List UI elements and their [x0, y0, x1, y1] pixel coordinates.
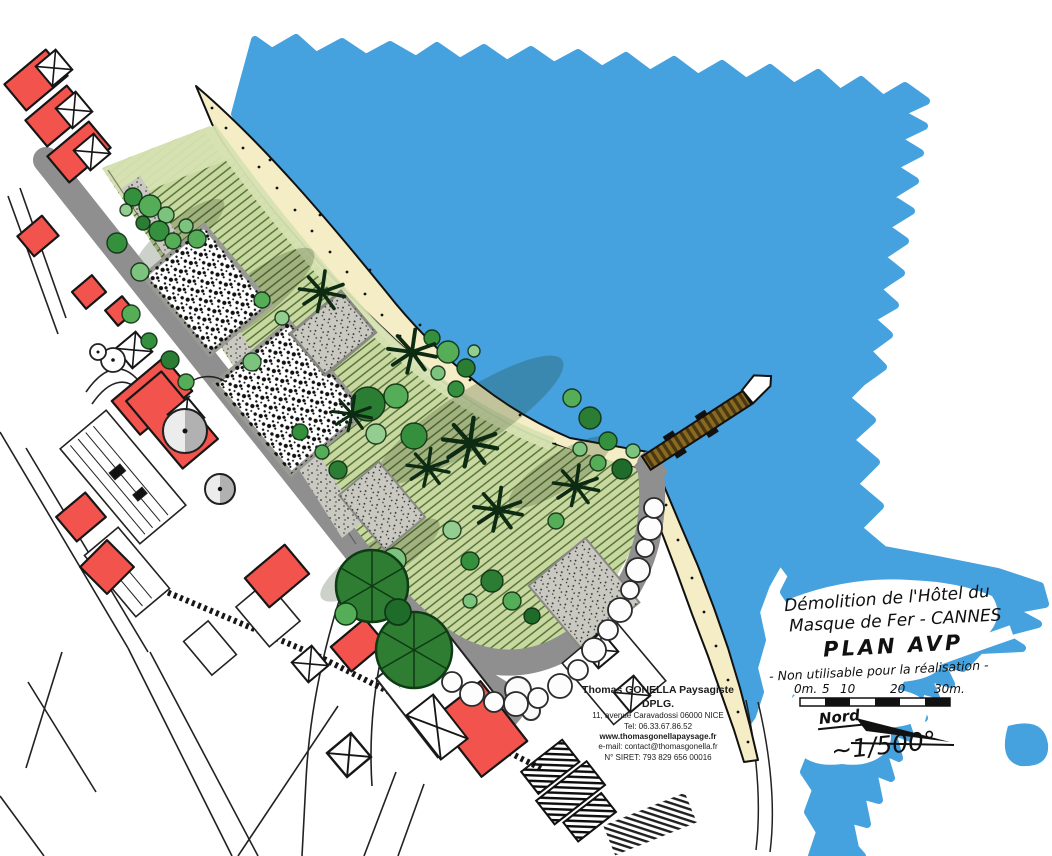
firm-siret: N° SIRET: 793 829 656 00016 [574, 753, 742, 763]
site-plan-drawing [0, 0, 1052, 856]
scale-label-5: 5 [822, 682, 830, 696]
scale-label-20: 20 [890, 682, 905, 696]
scale-label-30m: 30m. [934, 682, 965, 696]
dark-hatched-wedge [603, 793, 697, 856]
firm-tel: Tel: 06.33.67.86.52 [574, 722, 742, 732]
scale-label-0m: 0m. [794, 682, 817, 696]
firm-website: www.thomasgonellapaysage.fr [574, 732, 742, 742]
firm-name: Thomas GONELLA Paysagiste DPLG. [574, 684, 742, 711]
site-plan-canvas: Démolition de l'Hôtel du Masque de Fer -… [0, 0, 1052, 856]
scale-label-10: 10 [840, 682, 855, 696]
scale-bar [800, 698, 950, 706]
firm-email: e-mail: contact@thomasgonella.fr [574, 742, 742, 752]
firm-block: Thomas GONELLA Paysagiste DPLG. 11, aven… [574, 684, 742, 763]
firm-address: 11, avenue Caravadossi 06000 NICE [574, 711, 742, 721]
